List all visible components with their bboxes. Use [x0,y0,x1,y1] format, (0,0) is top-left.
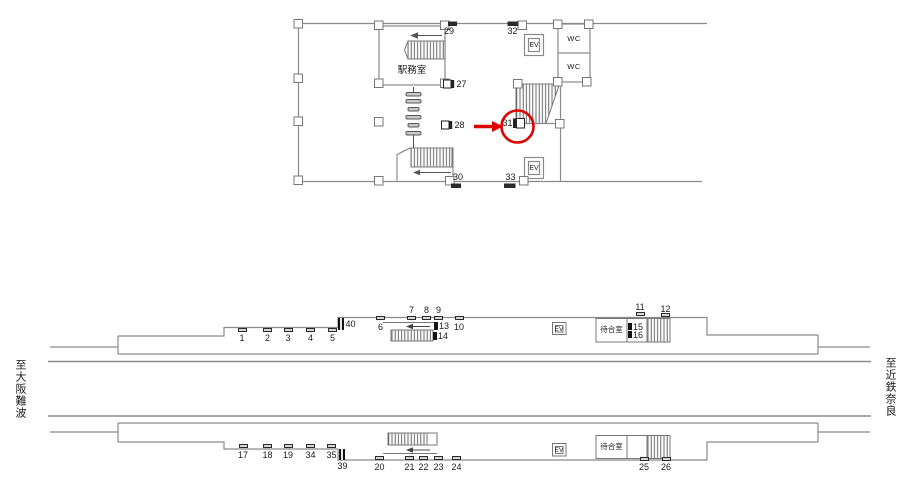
concourse-plan [298,24,707,182]
escalator-direction-arrow [406,324,413,329]
gate-ad-ticks [442,80,525,129]
ad-position-tick-32 [508,22,519,27]
ad-position-tick-33 [504,184,516,189]
diagram-linework [0,0,919,491]
ad-position-tick-29 [448,22,457,27]
escalator-direction-arrow [410,32,418,38]
concourse-stairs-bottom [397,148,453,181]
elevator-label-upper-platform: EV [549,326,569,333]
ad-position-tick-30 [451,184,461,189]
elevator-label-lower-platform: EV [549,447,569,454]
stairs-hatch [408,41,445,59]
stairs-hatch [411,148,452,167]
wall-ad-ticks [448,22,519,189]
station-ad-location-diagram: 駅務室 WC WC EV EV EV EV 待合室 待合室 至大阪難波 至近鉄奈… [0,0,919,491]
stairs-hatch [391,330,433,341]
ticket-gates [406,87,421,148]
concourse-escalator-top [405,32,446,59]
upper-platform-outline [50,318,870,355]
stairs-direction-arrow [413,170,420,176]
ad-position-tick-28 [442,121,450,129]
station-office-label: 駅務室 [379,66,445,76]
ad-position-tick-31 [517,119,525,129]
track-lines [48,362,871,417]
platform-plan [48,318,871,461]
elevator-label-bottom: EV [524,165,544,172]
waiting-room-label-lower: 待合室 [596,443,627,451]
lower-platform-outline [50,423,870,460]
direction-label-kintetsu-nara: 至近鉄奈良 [883,357,896,417]
concourse-stairs-right [513,84,560,124]
elevator-label-top: EV [524,42,544,49]
direction-label-osaka-namba: 至大阪難波 [13,359,26,419]
wc-label-top: WC [558,35,590,43]
waiting-room-label-upper: 待合室 [596,326,627,334]
wc-label-bottom: WC [558,63,590,71]
stairs-hatch [647,319,670,343]
stairs-hatch [516,84,560,124]
stairs-hatch [647,436,670,459]
escalator-direction-arrow [406,447,413,452]
stairs-hatch [388,433,427,445]
ad-position-tick-27 [444,80,452,88]
